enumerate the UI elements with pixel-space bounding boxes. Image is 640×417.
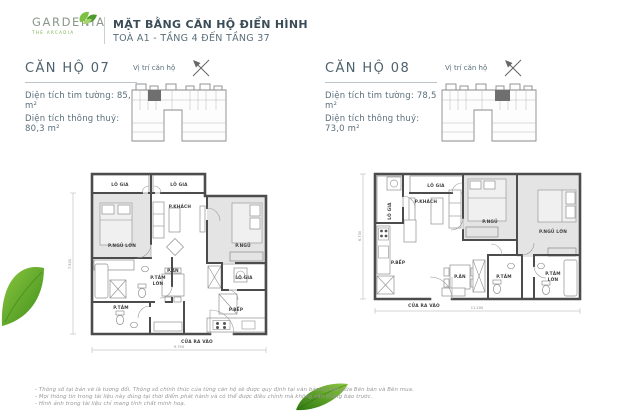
entrance-label: CỬA RA VÀO [408,301,440,309]
compass-icon [502,57,524,79]
apartment-07-area-net: Diện tích thông thuỷ: 80,3 m² [25,114,137,134]
compass-icon [190,57,212,79]
footnote-line: - Mọi thông tin trong tài liệu này đúng … [35,394,595,401]
apartment-08-name: CĂN HỘ 08 [325,61,437,76]
location-minimap-07 [130,77,228,143]
dim-width-07: 9.750 [174,345,185,349]
apartment-08-area-net: Diện tích thông thuỷ: 73,0 m² [325,114,437,134]
apartment-07-rule [25,82,137,83]
sink [508,263,515,269]
room-label-dining: P.ĂN [167,267,179,274]
dim-height-07: 7.500 [68,258,72,269]
washing-machine [387,177,401,190]
apartment-08-area-gross: Diện tích tim tường: 78,5 m² [325,91,437,111]
apartment-08-rule [325,82,437,83]
room-label-living: P.KHÁCH [415,198,438,205]
coffee-table [169,208,180,232]
apartment-08-location-label: Vị trí căn hộ [445,64,487,72]
sofa [449,190,461,228]
kitchen-counter [207,318,266,332]
svg-text:LỚN: LỚN [153,280,164,287]
apartment-07-location-label: Vị trí căn hộ [133,64,175,72]
floor-plan-07: LÔ GIA LÔ GIA P.KHÁCH P.NGỦ LỚN P.NGỦ P.… [58,148,290,360]
room-label-loggia2: LÔ GIA [170,181,188,188]
room-label-loggia-top: LÔ GIA [427,182,445,189]
toilet [138,288,145,297]
kitchen-island [404,220,416,242]
tv-cabinet [200,206,205,232]
apartment-08-info: CĂN HỘ 08 Diện tích tim tường: 78,5 m² D… [325,61,437,134]
bathtub [95,264,108,298]
hall-cabinet [154,322,182,331]
location-minimap-08 [440,77,538,143]
entrance-label: CỬA RA VÀO [181,337,213,345]
room-label-loggia-side: LÔ GIA [386,202,393,220]
header-divider [104,17,105,44]
room-label-loggia-side: LÔ GIA [235,274,253,281]
dim-height-08: 6.700 [358,230,362,241]
logo-tagline: THE ARCADIA [32,30,98,35]
hall-cabinet [442,288,465,296]
page-title: MẶT BẰNG CĂN HỘ ĐIỂN HÌNH [113,18,308,31]
logo-leaf-icon [76,10,98,25]
svg-text:LỚN: LỚN [548,276,559,283]
highlighted-unit-08 [495,90,510,101]
sink [142,266,149,272]
footnote-line: - Hình ảnh trong tài liệu chỉ mang tính … [35,401,595,408]
room-label-living: P.KHÁCH [169,203,192,210]
footnotes: - Thông số tại bản vẽ là tương đối. Thôn… [35,387,595,408]
toilet [493,284,500,293]
apartment-07-name: CĂN HỘ 07 [25,61,137,76]
header-titles: MẶT BẰNG CĂN HỘ ĐIỂN HÌNH TOÀ A1 - TẦNG … [113,18,308,44]
floor-plan-08: LÔ GIA LÔ GIA P.KHÁCH P.NGỦ P.NGỦ LỚN P.… [356,148,588,318]
room-label-dining: P.ĂN [454,273,466,280]
dim-width-08: 11.200 [471,306,484,310]
apartment-07-area-gross: Diện tích tim tường: 85,7 m² [25,91,137,111]
sofa [153,202,164,238]
brochure-page: GARDENIA THE ARCADIA MẶT BẰNG CĂN HỘ ĐIỂ… [0,0,640,417]
bathtub [564,260,577,296]
leaf-decoration-left [0,262,48,334]
room-label-loggia1: LÔ GIA [111,181,129,188]
page-subtitle: TOÀ A1 - TẦNG 4 ĐẾN TẦNG 37 [113,33,308,44]
highlighted-unit-07 [148,90,161,101]
footnote-line: - Thông số tại bản vẽ là tương đối. Thôn… [35,387,595,394]
kitchen-counter [377,226,390,274]
apartment-07-info: CĂN HỘ 07 Diện tích tim tường: 85,7 m² D… [25,61,137,134]
